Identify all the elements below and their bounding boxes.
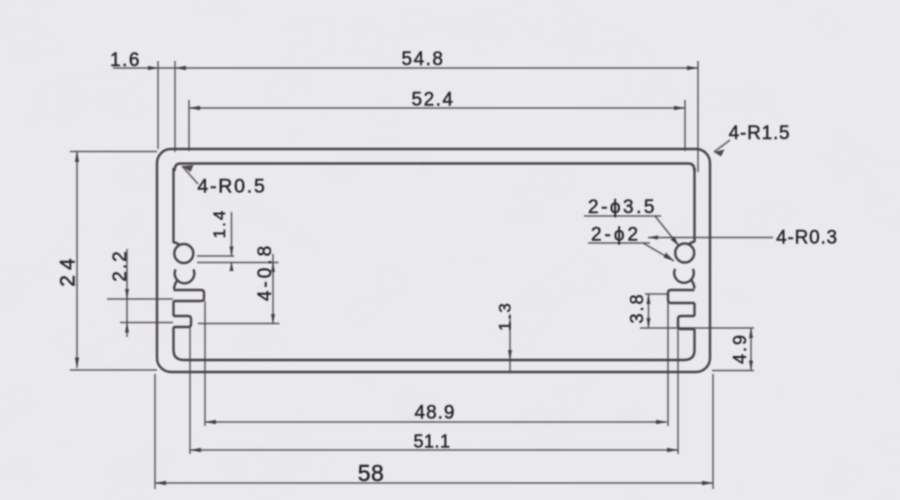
svg-text:1.3: 1.3 [496, 301, 515, 331]
svg-text:48.9: 48.9 [415, 403, 456, 424]
svg-text:52.4: 52.4 [412, 90, 455, 111]
svg-text:54.8: 54.8 [402, 49, 445, 70]
svg-text:4-0.8: 4-0.8 [255, 243, 276, 301]
svg-text:2-ϕ3.5: 2-ϕ3.5 [588, 197, 657, 218]
svg-text:51.1: 51.1 [413, 432, 450, 452]
svg-text:4-R0.5: 4-R0.5 [197, 176, 266, 198]
svg-text:1.4: 1.4 [210, 209, 229, 239]
svg-text:2-ϕ2: 2-ϕ2 [591, 225, 641, 246]
svg-text:4-R0.3: 4-R0.3 [776, 228, 838, 249]
svg-text:1.6: 1.6 [110, 50, 141, 71]
svg-text:2.2: 2.2 [110, 249, 131, 281]
svg-text:58: 58 [358, 460, 385, 486]
svg-text:4-R1.5: 4-R1.5 [729, 123, 791, 144]
svg-text:4.9: 4.9 [730, 333, 750, 364]
svg-text:24: 24 [57, 253, 80, 286]
svg-text:3.8: 3.8 [627, 292, 647, 323]
